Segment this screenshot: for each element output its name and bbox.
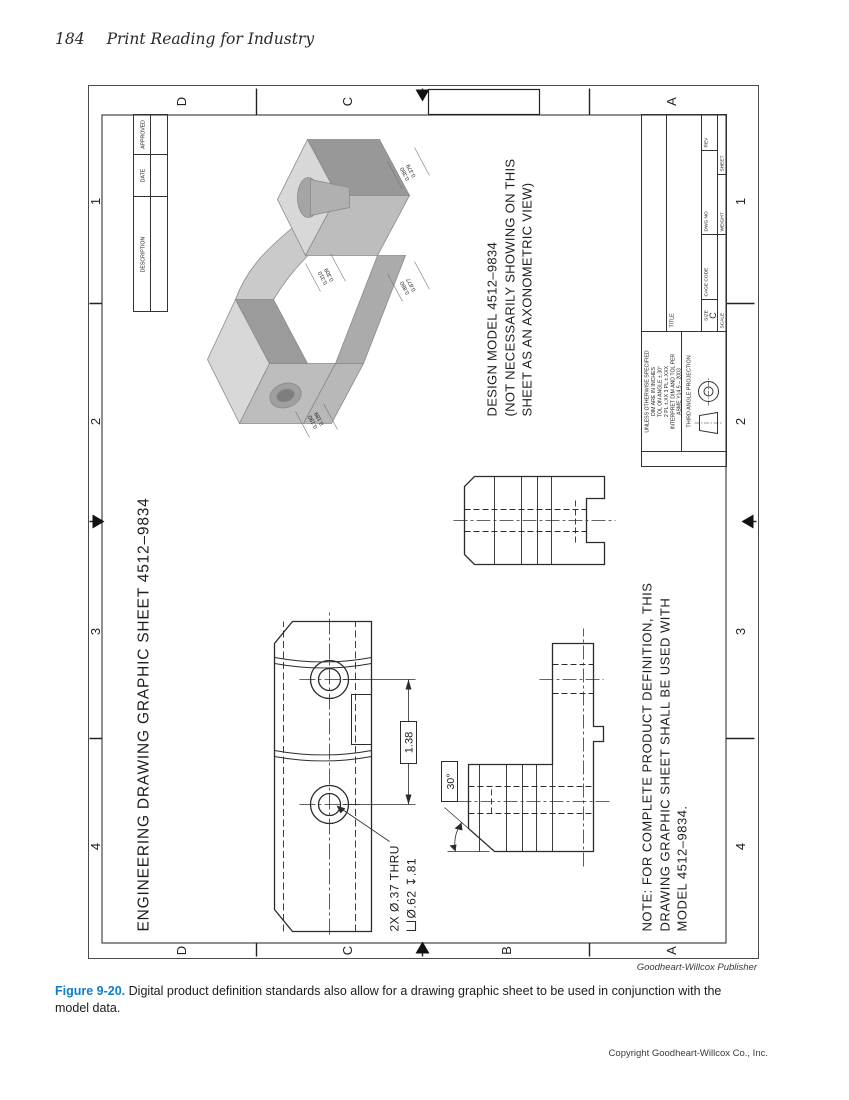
projection-label: THIRD ANGLE PROJECTION — [686, 355, 692, 427]
design-model-note-line2: (NOT NECESSARILY SHOWING ON THIS — [501, 158, 519, 416]
rev-col-date: DATE — [140, 168, 146, 182]
title-label: TITLE — [669, 312, 675, 327]
tolerance-line-5: INTERPRET DIM AND TOL PER — [670, 353, 676, 429]
iso-model: 0.310 0.309 0.880 0.877 0.190 0.189 0.38… — [177, 106, 465, 451]
dim-hole-spacing-value: 1.38 — [403, 731, 415, 752]
dwg-no-label: DWG NO — [703, 210, 709, 231]
book-page: 184 Print Reading for Industry — [0, 0, 849, 1100]
zone-row-A-left: A — [664, 946, 679, 955]
weight-label: WEIGHT — [719, 212, 725, 231]
tolerance-block: UNLESS OTHERWISE SPECIFIED DIM ARE IN IN… — [644, 350, 682, 433]
title-block: UNLESS OTHERWISE SPECIFIED DIM ARE IN IN… — [639, 112, 728, 468]
general-note-line1: NOTE: FOR COMPLETE PRODUCT DEFINITION, T… — [638, 582, 656, 931]
counterbore-note-line2: Ø.62 ↧.81 — [404, 857, 418, 918]
dim-hole-spacing: 1.38 — [342, 679, 416, 804]
copyright-line: Copyright Goodheart-Willcox Co., Inc. — [609, 1048, 768, 1059]
publisher-credit: Goodheart-Willcox Publisher — [637, 962, 757, 973]
zone-col-3-bottom: 3 — [733, 627, 748, 634]
zone-col-1-bottom: 1 — [733, 197, 748, 204]
sheet-heading: ENGINEERING DRAWING GRAPHIC SHEET 4512–9… — [135, 497, 153, 931]
third-angle-projection-icon — [694, 377, 722, 433]
tolerance-line-4: 2 PL ±.XX 3 PL ±.XXX — [664, 365, 670, 417]
hidden-lines — [468, 664, 593, 813]
rev-label: REV — [703, 136, 709, 147]
zone-row-C-left: C — [340, 945, 355, 954]
page-number: 184 — [55, 30, 85, 48]
zone-row-D-left: D — [174, 945, 189, 954]
figure-caption-text: Digital product definition standards als… — [55, 984, 721, 1015]
zone-col-1-top: 1 — [88, 197, 103, 204]
design-model-note: DESIGN MODEL 4512–9834 (NOT NECESSARILY … — [483, 158, 536, 416]
front-view: 1.38 2X Ø.37 THRU Ø.62 ↧.81 — [267, 602, 429, 934]
zone-row-A-right: A — [664, 97, 679, 106]
tolerance-line-1: UNLESS OTHERWISE SPECIFIED — [644, 350, 650, 433]
zone-col-2-bottom: 2 — [733, 417, 748, 424]
zone-col-4-top: 4 — [88, 842, 103, 849]
general-note-line2: DRAWING GRAPHIC SHEET SHALL BE USED WITH — [656, 582, 674, 931]
counterbore-note: 2X Ø.37 THRU Ø.62 ↧.81 — [336, 805, 418, 931]
side-view: 30° — [427, 618, 627, 878]
zone-col-2-top: 2 — [88, 417, 103, 424]
general-note-line3: MODEL 4512–9834. — [673, 582, 691, 931]
rev-col-approved: APPROVED — [140, 119, 146, 148]
sheet-label: SHEET — [719, 155, 725, 171]
rev-col-description: DESCRIPTION — [140, 236, 146, 272]
cage-code-label: CAGE CODE — [703, 267, 709, 296]
counterbore-note-line1: 2X Ø.37 THRU — [387, 845, 401, 931]
hidden-lines — [464, 498, 586, 542]
tolerance-line-2: DIM ARE IN INCHES — [651, 366, 657, 416]
tolerance-line-6: ASME Y14.5 – 2003 — [676, 367, 682, 414]
size-value: C — [708, 311, 718, 318]
figure-frame: 4 3 2 1 4 3 2 1 D C B A D C A DESCRIPTIO… — [88, 85, 759, 959]
zone-col-4-bottom: 4 — [733, 842, 748, 849]
drawing-sheet: 4 3 2 1 4 3 2 1 D C B A D C A DESCRIPTIO… — [89, 86, 756, 956]
figure-label: Figure 9-20. — [55, 984, 125, 998]
figure-caption: Figure 9-20. Digital product definition … — [55, 983, 755, 1017]
tolerance-line-3: TOL ON ANGLE ±.30° — [657, 365, 663, 416]
scale-label: SCALE — [719, 312, 725, 328]
general-note: NOTE: FOR COMPLETE PRODUCT DEFINITION, T… — [638, 582, 691, 931]
end-view — [457, 459, 617, 571]
design-model-note-line3: SHEET AS AN AXONOMETRIC VIEW) — [518, 158, 536, 416]
book-title: Print Reading for Industry — [107, 30, 315, 48]
zone-row-B-left: B — [499, 946, 514, 955]
dim-chamfer-angle-value: 30° — [445, 773, 457, 789]
page-header: 184 Print Reading for Industry — [55, 30, 314, 48]
zone-row-D-right: D — [174, 96, 189, 105]
design-model-note-line1: DESIGN MODEL 4512–9834 — [483, 158, 501, 416]
revision-table: DESCRIPTION DATE APPROVED — [131, 112, 169, 313]
zone-col-3-top: 3 — [88, 627, 103, 634]
zone-row-C-right: C — [340, 96, 355, 105]
dim-chamfer-angle: 30° — [441, 761, 489, 851]
counterbore-symbol-icon — [406, 921, 415, 930]
